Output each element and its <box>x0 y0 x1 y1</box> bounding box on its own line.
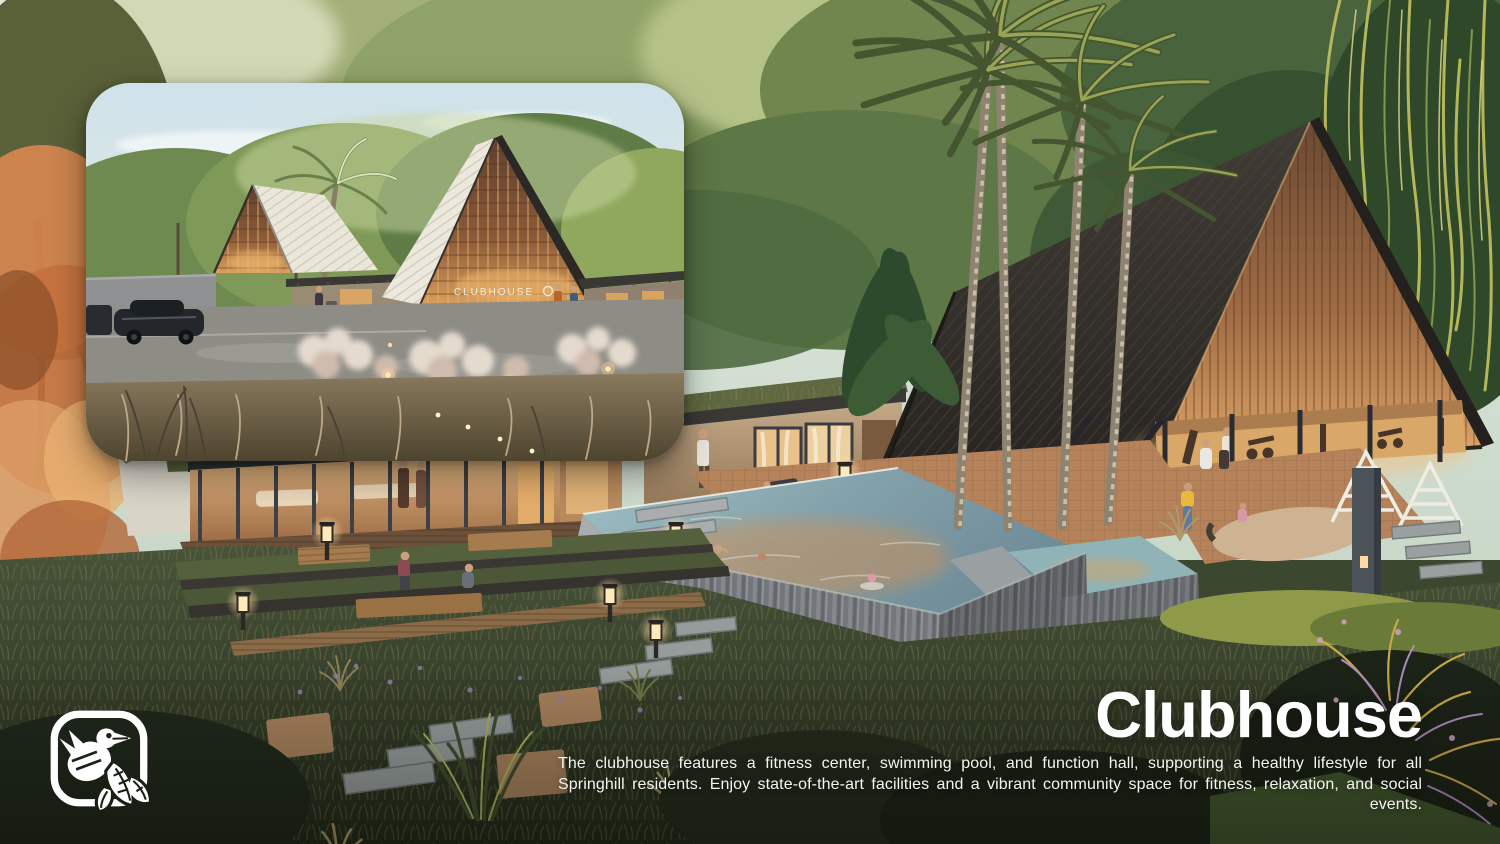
clubhouse-slide: CLUBHOUSE <box>0 0 1500 844</box>
inset-meadow <box>86 373 684 461</box>
pillar-lamp <box>1352 468 1381 610</box>
page-title: Clubhouse <box>522 682 1422 748</box>
inset-scene: CLUBHOUSE <box>86 83 684 461</box>
springhill-logo <box>46 706 152 810</box>
clubhouse-sign: CLUBHOUSE <box>454 287 534 298</box>
inset-photo: CLUBHOUSE <box>86 83 684 461</box>
page-description: The clubhouse features a fitness center,… <box>558 754 1422 816</box>
caption-block: Clubhouse The clubhouse features a fitne… <box>522 682 1422 816</box>
